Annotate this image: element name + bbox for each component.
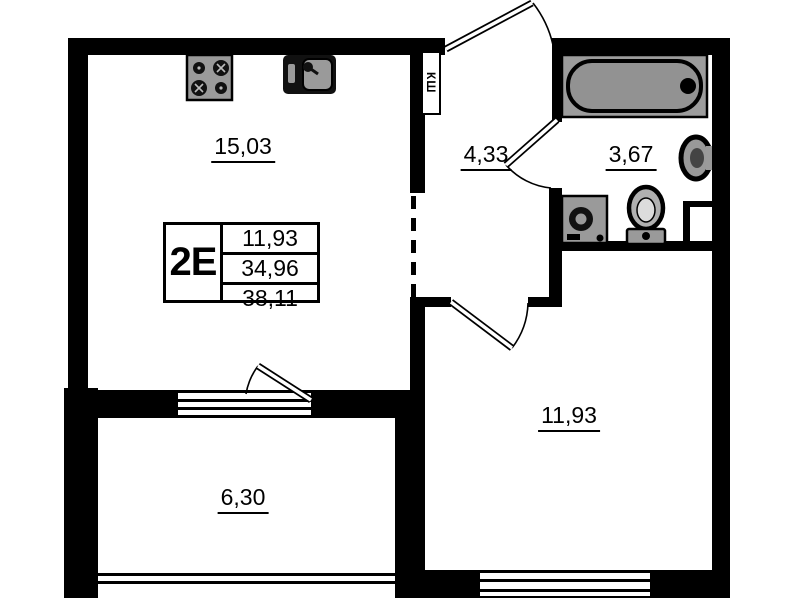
bathroom-door [506, 120, 557, 188]
entrance-door [446, 3, 553, 49]
washbasin-icon [681, 137, 712, 179]
bathtub-icon [562, 55, 707, 117]
floor-plan: КШ 15,03 4,33 3,67 11,93 6,30 2Е 11,93 3… [0, 0, 799, 600]
bedroom-door [451, 302, 528, 348]
stove-icon [187, 55, 232, 100]
washing-machine-icon [562, 196, 607, 243]
balcony-door [246, 366, 311, 400]
kitchen-sink-icon [283, 55, 336, 94]
fixtures-and-doors-layer [0, 0, 799, 600]
toilet-icon [627, 187, 665, 244]
